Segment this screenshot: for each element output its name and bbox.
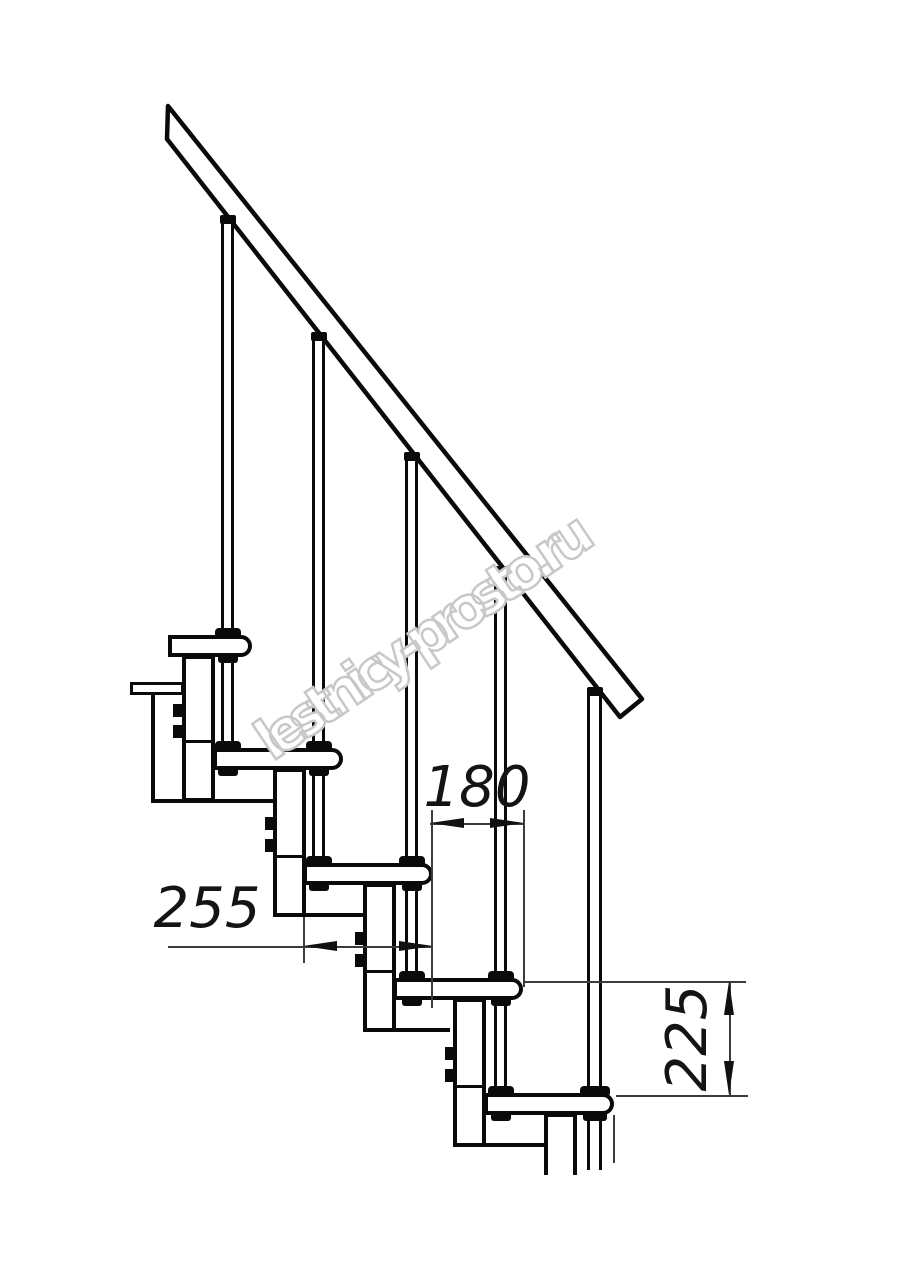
baluster-collar-6 [399, 971, 425, 980]
baluster-nut-6 [402, 998, 422, 1006]
baluster-cap-2 [311, 332, 327, 341]
dimension-line-255 [168, 946, 433, 948]
baluster-nut-7 [491, 998, 511, 1006]
dimension-value-225: 225 [660, 985, 716, 1092]
arrowhead-255-right [399, 941, 433, 951]
extension-line-tread4-nose [523, 810, 525, 987]
baluster-nut-9 [583, 1113, 607, 1121]
arrowhead-225-down [724, 1061, 734, 1095]
baluster-collar-7 [488, 971, 514, 980]
baluster-collar-4 [306, 856, 332, 865]
baluster-nut-3 [309, 768, 329, 776]
baluster-nut-5 [402, 883, 422, 891]
dimension-value-180: 180 [424, 760, 531, 816]
extension-line-shared-tread3-nose [431, 810, 433, 1008]
tread5-nose-drop-line [613, 1115, 615, 1163]
baluster-collar-1 [215, 628, 241, 637]
tread-1 [168, 635, 252, 657]
baluster-cap-1 [220, 215, 236, 224]
extension-line-rise-bottom [616, 1095, 748, 1097]
tread-5 [484, 1093, 614, 1115]
baluster-collar-8 [488, 1086, 514, 1095]
baluster-nut-1 [218, 655, 238, 663]
baluster-collar-5 [399, 856, 425, 865]
baluster-collar-9 [580, 1086, 610, 1095]
tread-3 [303, 863, 433, 885]
arrowhead-255-left [303, 941, 337, 951]
baluster-cap-5 [587, 687, 603, 696]
baluster-nut-8 [491, 1113, 511, 1121]
baluster-cap-3 [404, 452, 420, 461]
staircase-drawing: 180 255 225 lestnicy-prosto.ru [0, 0, 914, 1280]
baluster-collar-2 [215, 741, 241, 750]
arrowhead-225-up [724, 981, 734, 1015]
extension-line-rise-top [525, 981, 746, 983]
baluster-nut-2 [218, 768, 238, 776]
dimension-value-255: 255 [154, 881, 261, 937]
tread-4 [393, 978, 523, 1000]
baluster-nut-4 [309, 883, 329, 891]
